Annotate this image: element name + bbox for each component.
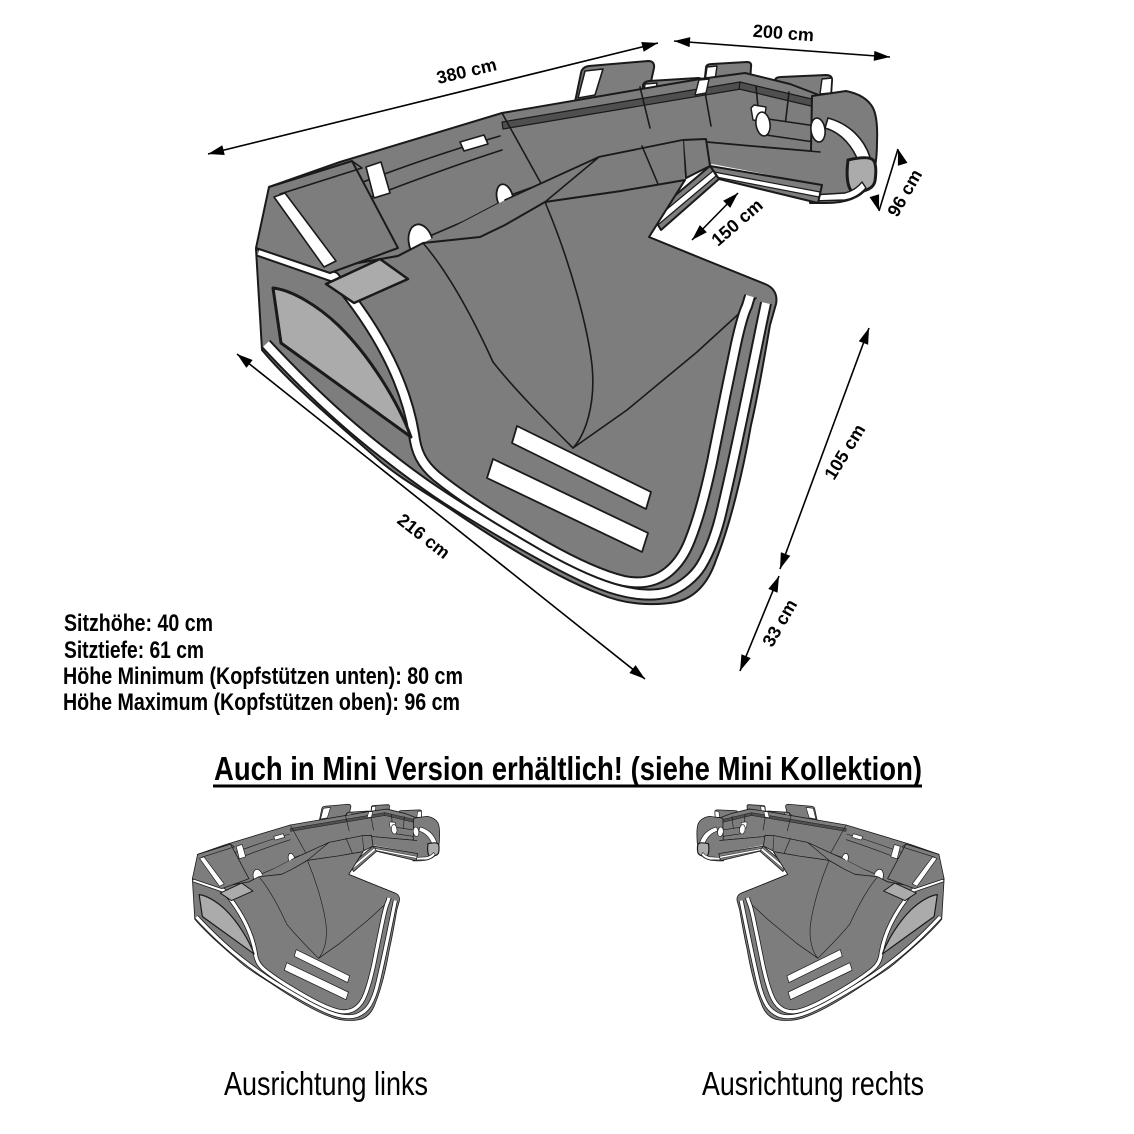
- svg-text:Höhe Maximum (Kopfstützen oben: Höhe Maximum (Kopfstützen oben): 96 cm: [63, 689, 460, 716]
- svg-text:Sitzhöhe: 40 cm: Sitzhöhe: 40 cm: [64, 610, 213, 637]
- svg-text:380 cm: 380 cm: [435, 54, 499, 88]
- svg-text:Ausrichtung rechts: Ausrichtung rechts: [702, 1065, 924, 1102]
- svg-text:216 cm: 216 cm: [393, 510, 453, 563]
- svg-text:150 cm: 150 cm: [707, 195, 766, 250]
- svg-text:Sitztiefe: 61 cm: Sitztiefe: 61 cm: [64, 637, 204, 664]
- svg-text:Höhe Minimum (Kopfstützen unte: Höhe Minimum (Kopfstützen unten): 80 cm: [63, 663, 463, 690]
- svg-text:Auch in Mini Version erhältlic: Auch in Mini Version erhältlich! (siehe …: [214, 750, 922, 787]
- svg-text:200 cm: 200 cm: [752, 21, 814, 46]
- svg-text:Ausrichtung links: Ausrichtung links: [224, 1065, 428, 1102]
- svg-text:33 cm: 33 cm: [758, 596, 801, 650]
- svg-text:105 cm: 105 cm: [820, 421, 869, 484]
